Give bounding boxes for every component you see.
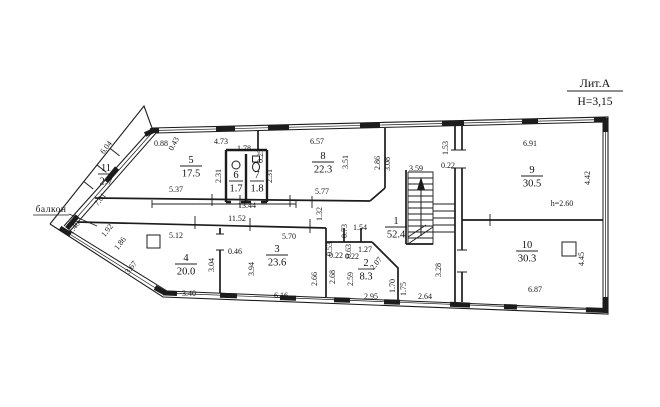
- dimension-label: 0.22: [345, 252, 359, 261]
- dimension-label: 3.40: [182, 289, 196, 298]
- dimension-label: 1.75: [399, 282, 408, 296]
- room-area: 17.5: [182, 169, 200, 180]
- dimension-label: 5.70: [282, 232, 296, 241]
- room-area: 30.5: [523, 179, 541, 190]
- dimension-label: 1.53: [441, 141, 450, 155]
- dimension-label: 5.37: [169, 185, 183, 194]
- dimension-label: 3.59: [409, 164, 423, 173]
- room-area: 1.8: [250, 184, 263, 195]
- dimension-label: 6.91: [523, 139, 537, 148]
- dimension-label: 7.01: [92, 191, 108, 208]
- dimension-label: 0.88: [154, 139, 168, 148]
- room-number: 4: [183, 253, 189, 264]
- dimension-label: 3.94: [247, 262, 256, 276]
- dimension-label: 1.54: [353, 223, 367, 232]
- room-label-4: 420.0: [175, 253, 197, 278]
- room-number: 6: [233, 170, 238, 181]
- room-area: 52.4: [387, 230, 406, 241]
- floor-plan-canvas: Лит.А H=3,15 балкон 0.880.434.731.780.25…: [0, 0, 660, 407]
- room-label-9: 930.5: [521, 165, 543, 190]
- dimension-label: 2.31: [265, 169, 274, 183]
- room-label-5: 517.5: [180, 155, 202, 180]
- room-number: 10: [522, 240, 533, 251]
- partition-walls: [77, 126, 603, 302]
- room-number: 7: [254, 170, 259, 181]
- dimension-label: 1.78: [237, 144, 251, 153]
- floor-plan-page: Лит.А H=3,15 балкон 0.880.434.731.780.25…: [0, 0, 660, 407]
- room-number: 9: [529, 165, 534, 176]
- dimension-label: 0.22: [441, 161, 455, 170]
- room-label-1: 152.4: [385, 216, 407, 241]
- dimension-label: 6.04: [98, 139, 114, 156]
- room-label-6: 61.7: [229, 170, 243, 195]
- room-number: 2: [363, 258, 368, 269]
- dimension-label: 0.73: [340, 224, 349, 238]
- dimension-label: 11.52: [228, 214, 246, 223]
- room-label-3: 323.6: [266, 244, 288, 269]
- balcony-label: балкон: [36, 204, 67, 215]
- dimension-label: 1.32: [315, 207, 324, 221]
- dimension-label: 1.92: [99, 222, 115, 239]
- dimension-label: 5.77: [315, 187, 329, 196]
- room-area: 8.3: [359, 272, 372, 283]
- room-number: 3: [274, 244, 279, 255]
- stair-treads: [408, 172, 455, 244]
- dimension-label: 6.87: [528, 285, 542, 294]
- dimension-label: 4.73: [214, 137, 228, 146]
- room-label-8: 822.3: [312, 151, 334, 176]
- dimension-label: 3.51: [341, 155, 350, 169]
- dimension-label: 3.67: [123, 259, 139, 276]
- room-area: 22.3: [314, 165, 332, 176]
- dimension-label: 1.86: [112, 235, 128, 252]
- stair-arrow-head: [417, 177, 425, 190]
- dimension-label: 13.44: [238, 201, 256, 210]
- dimension-label: 0.22: [329, 251, 343, 260]
- room-area: 23.6: [268, 258, 286, 269]
- room-number: 11: [101, 163, 111, 174]
- room-area: 2.7: [99, 177, 112, 188]
- dimension-label: 2.86: [373, 156, 382, 170]
- dimension-label: 0.46: [228, 247, 242, 256]
- dimension-label: 2.66: [310, 272, 319, 286]
- room-area: 1.7: [229, 184, 242, 195]
- interior-walls: [77, 126, 603, 302]
- room-number: 5: [188, 155, 193, 166]
- dimension-label: 2.64: [418, 292, 432, 301]
- room-number: 8: [320, 151, 325, 162]
- building-height-label: H=3,15: [578, 96, 613, 108]
- dimension-label: 3.04: [207, 258, 216, 272]
- room-number: 1: [393, 216, 398, 227]
- dimension-label: 4.42: [583, 171, 592, 185]
- staircase: [408, 172, 455, 244]
- dimension-label: 2.68: [328, 270, 337, 284]
- shaft-square-room4: [147, 235, 160, 248]
- room-area: 20.0: [177, 267, 195, 278]
- dimension-label: 0.25: [256, 149, 265, 163]
- dimension-label: 1.27: [358, 245, 372, 254]
- dimension-label: 3.28: [434, 263, 443, 277]
- dimension-label: 2.31: [214, 169, 223, 183]
- dimension-label: 5.12: [169, 231, 183, 240]
- shaft-square-room10: [562, 242, 576, 256]
- dimension-label: 4.45: [577, 252, 586, 266]
- dimension-label: h=2.60: [551, 199, 574, 208]
- dimension-label: 2.95: [364, 292, 378, 301]
- liter-label: Лит.А: [580, 76, 611, 90]
- dimension-label: 3.08: [383, 157, 392, 171]
- title-block: Лит.А H=3,15: [567, 76, 623, 108]
- dimension-label: 6.57: [310, 137, 324, 146]
- room-label-7: 71.8: [250, 170, 264, 195]
- room-area: 30.3: [518, 254, 536, 265]
- room-label-10: 1030.3: [516, 240, 538, 265]
- sink-icon: [232, 161, 240, 169]
- dimension-label: 6.16: [274, 291, 288, 300]
- dimension-labels-layer: 0.880.434.731.780.256.573.512.863.081.53…: [66, 136, 592, 301]
- dimension-label: 0.43: [167, 136, 182, 153]
- dimension-label: 1.70: [388, 279, 397, 293]
- dimension-label: 2.59: [346, 272, 355, 286]
